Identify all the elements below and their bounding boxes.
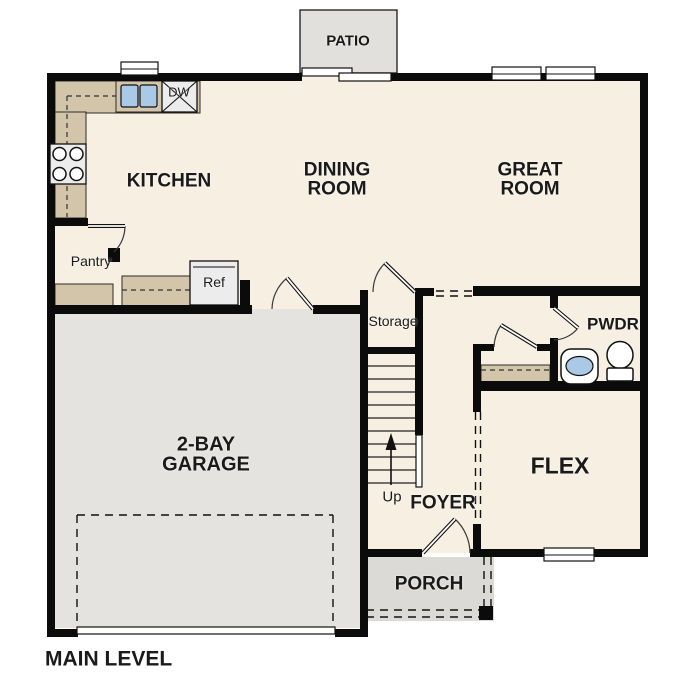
toilet	[607, 342, 633, 382]
kitchen-window	[121, 62, 158, 75]
room-label-pantry: Pantry	[71, 254, 111, 268]
room-label-foyer: FOYER	[410, 493, 475, 512]
sink-basin-right	[140, 85, 157, 107]
room-label-great: GREAT ROOM	[497, 161, 562, 200]
foyer-closet-shelf	[481, 365, 550, 382]
floor-plan: PATIO KITCHEN DINING ROOM GREAT ROOM Pan…	[0, 0, 687, 687]
porch-post	[479, 606, 493, 620]
garage-door	[77, 627, 335, 634]
flex-window	[544, 548, 594, 561]
room-label-patio: PATIO	[326, 33, 370, 48]
dishwasher-label: DW	[168, 85, 190, 98]
room-label-porch: PORCH	[395, 574, 464, 593]
room-label-flex: FLEX	[531, 454, 590, 477]
room-label-powder: PWDR	[587, 315, 639, 332]
floor-plan-drawing	[0, 0, 687, 687]
room-label-dining: DINING ROOM	[304, 161, 371, 200]
sink-basin-left	[121, 85, 138, 107]
stair-handrail	[416, 435, 422, 487]
room-label-storage: Storage	[368, 314, 417, 328]
range-stove	[50, 144, 86, 184]
stair-up-label: Up	[382, 489, 401, 504]
plan-title: MAIN LEVEL	[45, 648, 172, 669]
room-label-kitchen: KITCHEN	[127, 171, 211, 190]
pantry-shelf	[55, 284, 113, 306]
powder-sink	[561, 349, 598, 384]
great-room-window-left	[492, 67, 541, 80]
great-room-window-right	[546, 67, 595, 80]
room-label-garage: 2-BAY GARAGE	[162, 435, 250, 476]
counter-bottom-run	[122, 276, 190, 306]
refrigerator-label: Ref	[203, 275, 225, 289]
